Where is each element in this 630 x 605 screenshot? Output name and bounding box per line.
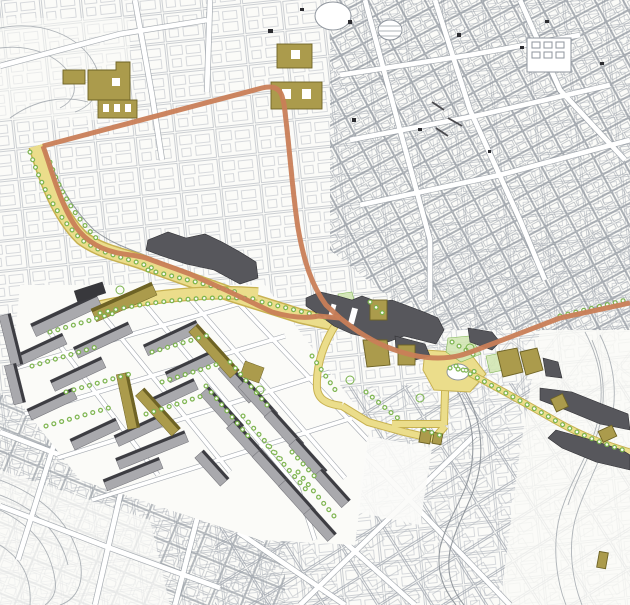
small-oval <box>378 20 402 40</box>
stadium-oval <box>315 2 351 30</box>
map-canvas <box>0 0 630 605</box>
urban-plan-map <box>0 0 630 605</box>
